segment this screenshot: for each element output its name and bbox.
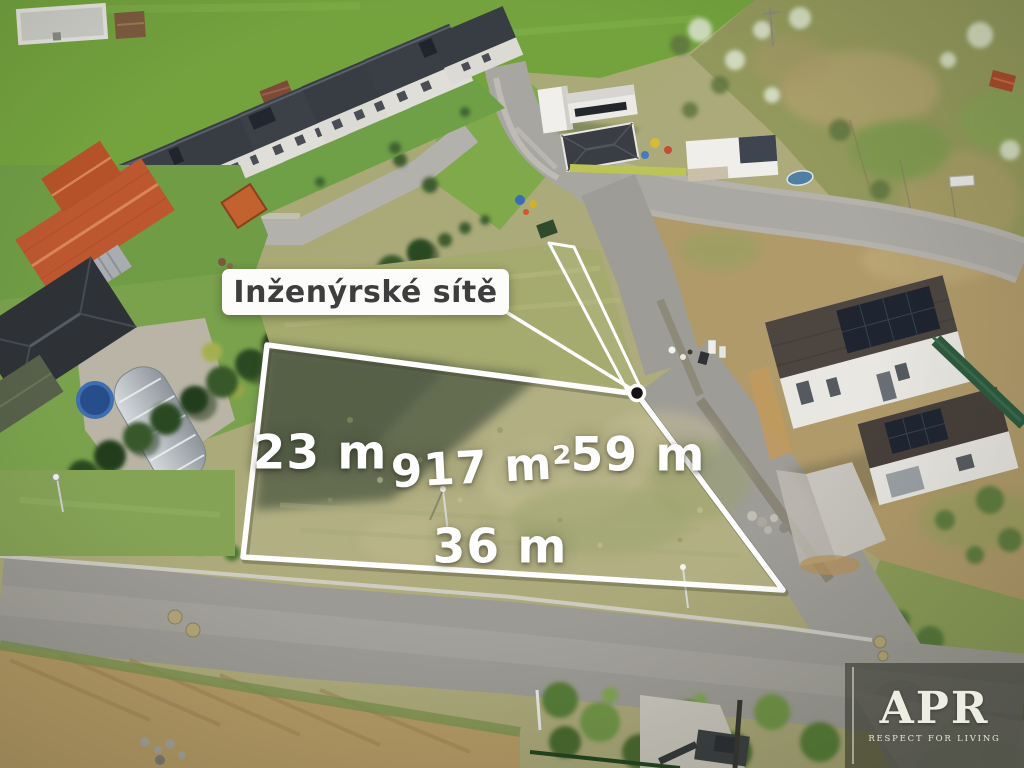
white-flat-building: [686, 135, 779, 181]
aerial-listing-photo: Inženýrské sítě 23 m 917 m² 59 m 36 m AP…: [0, 0, 1024, 768]
street-lamp: [53, 474, 60, 481]
watermark-tagline: RESPECT FOR LIVING: [868, 734, 1000, 744]
left-verge: [0, 470, 235, 556]
measurement-side-bottom: 36 m: [433, 520, 568, 575]
utilities-label-text: Inženýrské sítě: [233, 275, 497, 310]
measurement-area: 917 m²: [390, 436, 575, 498]
watermark-divider: [852, 667, 854, 764]
measurement-side-right: 59 m: [571, 428, 706, 483]
watermark-brand: APR: [880, 687, 990, 731]
yellow-hedge: [570, 168, 686, 172]
watermark: APR RESPECT FOR LIVING: [845, 663, 1024, 768]
flat-roof-house: [16, 3, 108, 45]
aerial-photo-scene: [0, 0, 1024, 768]
trampoline: [78, 383, 112, 417]
utilities-label: Inženýrské sítě: [222, 269, 509, 315]
trailer: [950, 175, 975, 187]
measurement-side-left: 23 m: [253, 426, 388, 481]
utility-point-marker: [630, 386, 645, 401]
